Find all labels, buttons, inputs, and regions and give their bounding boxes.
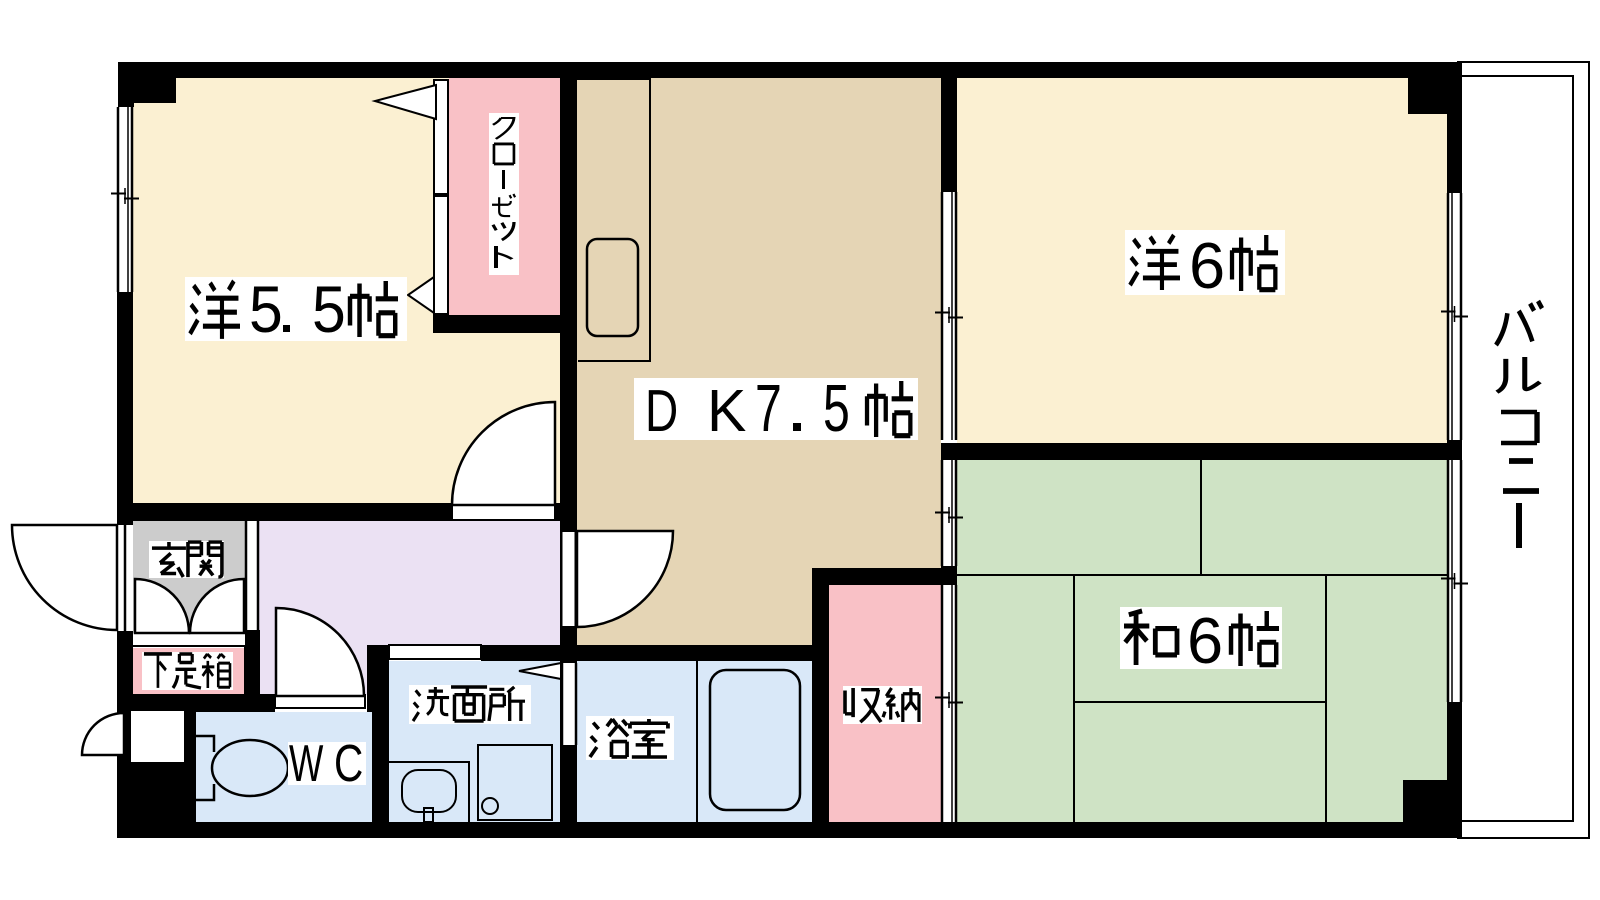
svg-text:5: 5	[249, 274, 283, 347]
svg-text:W: W	[289, 733, 324, 792]
svg-text:5: 5	[312, 274, 346, 347]
svg-text:D: D	[645, 379, 678, 445]
svg-text:6: 6	[1189, 229, 1225, 302]
svg-text:C: C	[334, 734, 363, 792]
svg-text:K: K	[707, 378, 746, 444]
svg-text:7: 7	[755, 371, 782, 446]
svg-text:5: 5	[823, 371, 850, 446]
svg-text:6: 6	[1187, 604, 1223, 677]
